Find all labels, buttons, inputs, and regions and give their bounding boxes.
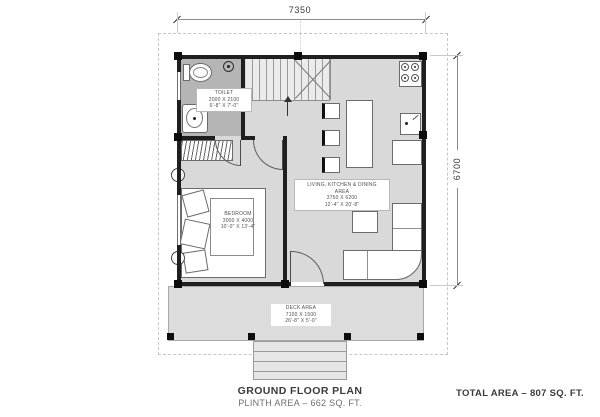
bedroom-size-ft: 10'-0" X 13'-4" — [203, 224, 273, 231]
deck-label: DECK AREA 7100 X 1500 26'-8" X 5'-0" — [271, 304, 331, 326]
kitchen-sink — [400, 113, 421, 135]
living-name-line1: LIVING, KITCHEN & DINING — [295, 182, 389, 189]
toilet-label: TOILET 2000 X 2100 6'-8" X 7'-0" — [196, 88, 252, 112]
wc-toilet-inner — [193, 67, 208, 78]
deck-post — [417, 333, 424, 340]
wall-post — [174, 133, 182, 141]
extension-line — [425, 12, 426, 33]
wall-toilet-bottom — [181, 136, 215, 140]
living-size-ft: 12'-4" X 20'-8" — [295, 202, 389, 209]
floor-plan-canvas: TOILET 2000 X 2100 6'-8" X 7'-0" BEDROOM… — [0, 0, 600, 417]
toilet-door-leaf — [240, 140, 241, 166]
living-label: LIVING, KITCHEN & DINING AREA 3750 X 620… — [294, 179, 390, 211]
wall-post — [281, 280, 289, 288]
stair-arrowhead-icon — [284, 96, 292, 102]
wall-post — [419, 131, 427, 139]
wall-bedroom-living — [283, 136, 287, 286]
entrance-door-leaf — [290, 251, 291, 284]
dimension-line-top — [177, 19, 426, 20]
deck-post — [167, 333, 174, 340]
stove-burner-icon — [401, 74, 409, 82]
wall-right — [422, 55, 426, 286]
window — [177, 195, 181, 245]
wall-post — [419, 52, 427, 60]
plan-subtitle: PLINTH AREA – 662 SQ. FT. — [200, 398, 400, 408]
sofa-cushion-line — [367, 251, 368, 279]
dining-chair — [322, 130, 340, 146]
staircase — [246, 59, 330, 100]
sofa-cushion-line — [393, 228, 421, 229]
washbasin-drain — [193, 117, 196, 120]
extension-line — [430, 55, 463, 56]
deck-post — [248, 333, 255, 340]
axis-line-top — [300, 21, 301, 55]
kitchen-unit — [392, 140, 422, 165]
toilet-size-ft: 6'-8" X 7'-0" — [197, 103, 251, 110]
plan-title: GROUND FLOOR PLAN — [200, 385, 400, 397]
stove-burner-icon — [411, 63, 419, 71]
dimension-width: 7350 — [277, 5, 323, 15]
wall-bottom-right — [324, 282, 426, 286]
wall-post — [294, 52, 302, 60]
entry-steps — [253, 341, 347, 380]
sofa-horizontal-section — [343, 250, 422, 280]
deck-size-ft: 26'-8" X 5'-0" — [271, 318, 331, 325]
wall-bedroom-top — [241, 136, 255, 140]
dining-chair — [322, 103, 340, 119]
wall-post — [419, 280, 427, 288]
wall-post — [174, 280, 182, 288]
extension-line — [430, 285, 463, 286]
wall-post — [174, 52, 182, 60]
sink-drain — [405, 122, 408, 125]
coffee-table — [352, 211, 378, 233]
dining-chair — [322, 157, 340, 173]
window — [177, 72, 181, 100]
bed-pillow — [182, 249, 208, 273]
bedroom-label: BEDROOM 3000 X 4000 10'-0" X 13'-4" — [203, 211, 273, 231]
stair-arrow-icon — [287, 101, 288, 116]
deck-post — [344, 333, 351, 340]
total-area-text: TOTAL AREA – 807 SQ. FT. — [440, 388, 600, 399]
shower-icon — [223, 61, 234, 72]
stair-edge — [330, 59, 331, 100]
wall-bottom-left — [177, 282, 291, 286]
dimension-height: 6700 — [452, 150, 462, 188]
stove-burner-icon — [401, 63, 409, 71]
stove-burner-icon — [411, 74, 419, 82]
extension-line — [177, 12, 178, 33]
dining-table — [346, 100, 373, 168]
